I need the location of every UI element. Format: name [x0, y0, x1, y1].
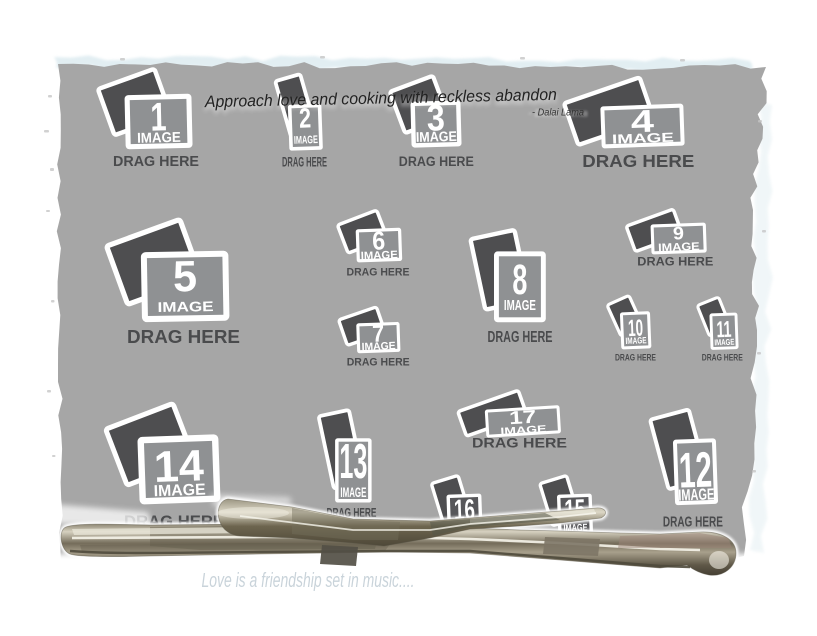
- svg-text:8: 8: [512, 256, 527, 304]
- svg-text:IMAGE: IMAGE: [153, 481, 206, 500]
- svg-text:Love is a friendship set in mu: Love is a friendship set in music....: [202, 570, 415, 592]
- svg-text:IMAGE: IMAGE: [361, 249, 398, 262]
- svg-text:IMAGE: IMAGE: [157, 298, 213, 315]
- svg-text:5: 5: [173, 253, 198, 301]
- svg-text:IMAGE: IMAGE: [658, 241, 700, 254]
- svg-text:DRAG HERE: DRAG HERE: [637, 255, 713, 269]
- svg-text:DRAG HERE: DRAG HERE: [347, 356, 410, 368]
- svg-text:13: 13: [339, 435, 367, 489]
- svg-text:- Dalai Lama: - Dalai Lama: [532, 107, 584, 119]
- svg-text:IMAGE: IMAGE: [504, 298, 536, 314]
- svg-text:DRAG HERE: DRAG HERE: [399, 154, 474, 169]
- svg-text:DRAG HERE: DRAG HERE: [702, 353, 743, 363]
- svg-text:DRAG HERE: DRAG HERE: [472, 436, 567, 451]
- svg-text:IMAGE: IMAGE: [612, 129, 675, 146]
- svg-text:DRAG HERE: DRAG HERE: [347, 266, 410, 278]
- svg-text:DRAG HERE: DRAG HERE: [582, 151, 694, 171]
- svg-text:IMAGE: IMAGE: [678, 486, 715, 504]
- svg-text:DRAG HERE: DRAG HERE: [113, 153, 199, 170]
- svg-text:IMAGE: IMAGE: [714, 337, 735, 348]
- svg-text:IMAGE: IMAGE: [625, 335, 646, 346]
- svg-text:IMAGE: IMAGE: [137, 130, 181, 147]
- svg-text:DRAG HERE: DRAG HERE: [663, 514, 723, 531]
- svg-text:DRAG HERE: DRAG HERE: [282, 153, 327, 169]
- svg-text:IMAGE: IMAGE: [294, 134, 318, 147]
- svg-text:IMAGE: IMAGE: [361, 340, 395, 353]
- svg-text:IMAGE: IMAGE: [340, 485, 366, 500]
- svg-text:DRAG HERE: DRAG HERE: [488, 329, 553, 346]
- svg-text:IMAGE: IMAGE: [416, 128, 457, 145]
- svg-text:DRAG HERE: DRAG HERE: [615, 353, 656, 363]
- svg-text:DRAG HERE: DRAG HERE: [127, 326, 240, 347]
